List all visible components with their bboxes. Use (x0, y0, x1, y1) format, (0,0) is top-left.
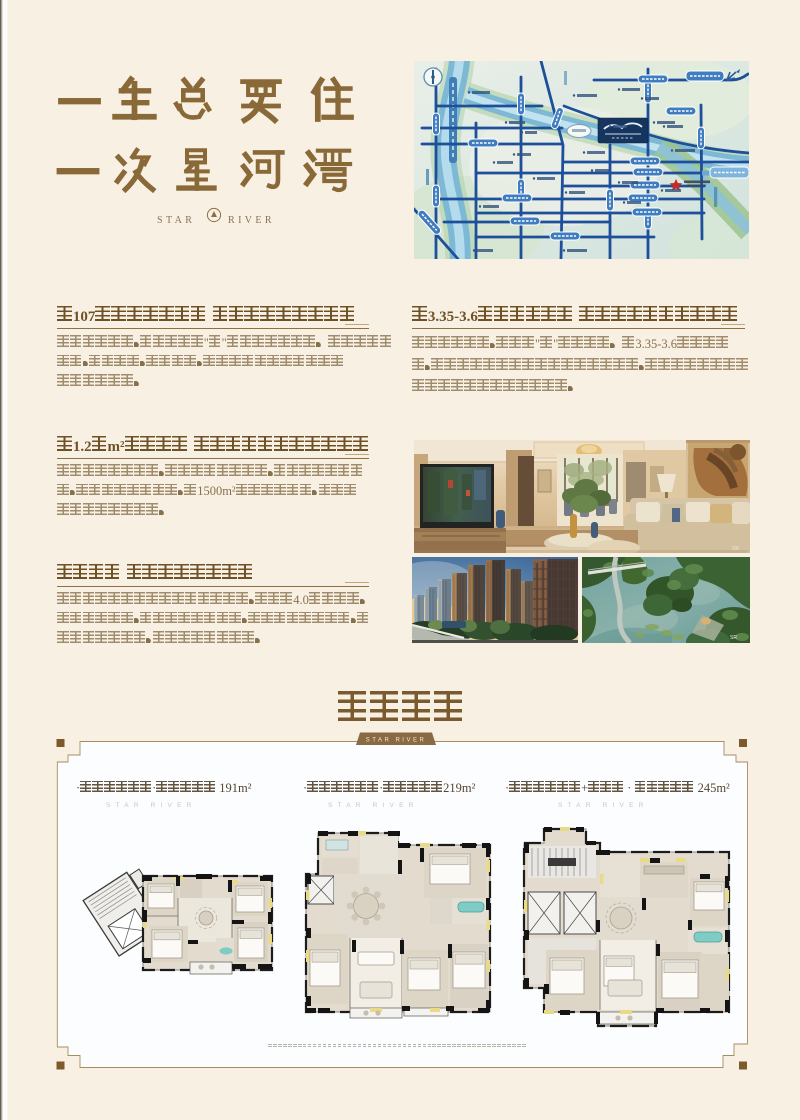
svg-text:SR: SR (730, 635, 737, 641)
svg-text:SR: SR (732, 546, 739, 552)
